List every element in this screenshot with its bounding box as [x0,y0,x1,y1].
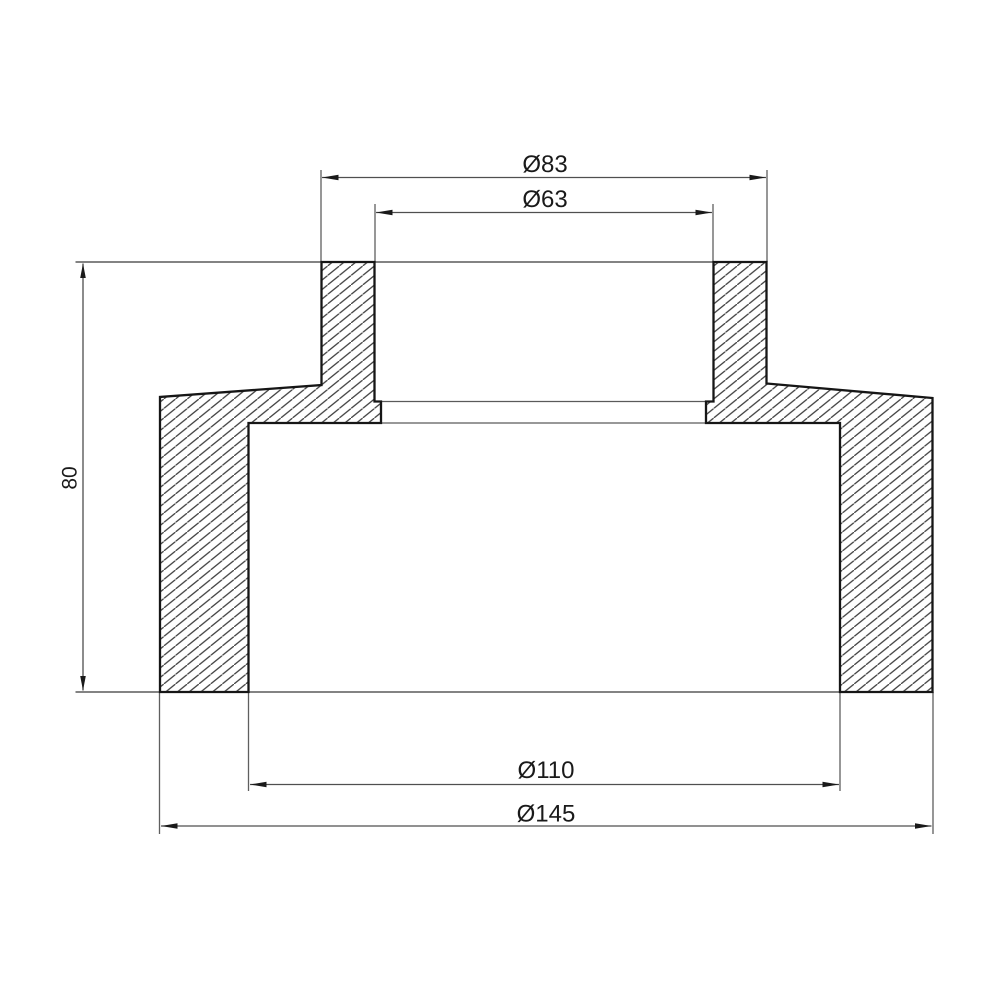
svg-text:Ø63: Ø63 [522,186,567,213]
svg-text:Ø145: Ø145 [517,801,576,828]
svg-text:Ø83: Ø83 [522,151,567,178]
svg-text:Ø110: Ø110 [518,757,575,784]
svg-text:80: 80 [59,466,82,489]
